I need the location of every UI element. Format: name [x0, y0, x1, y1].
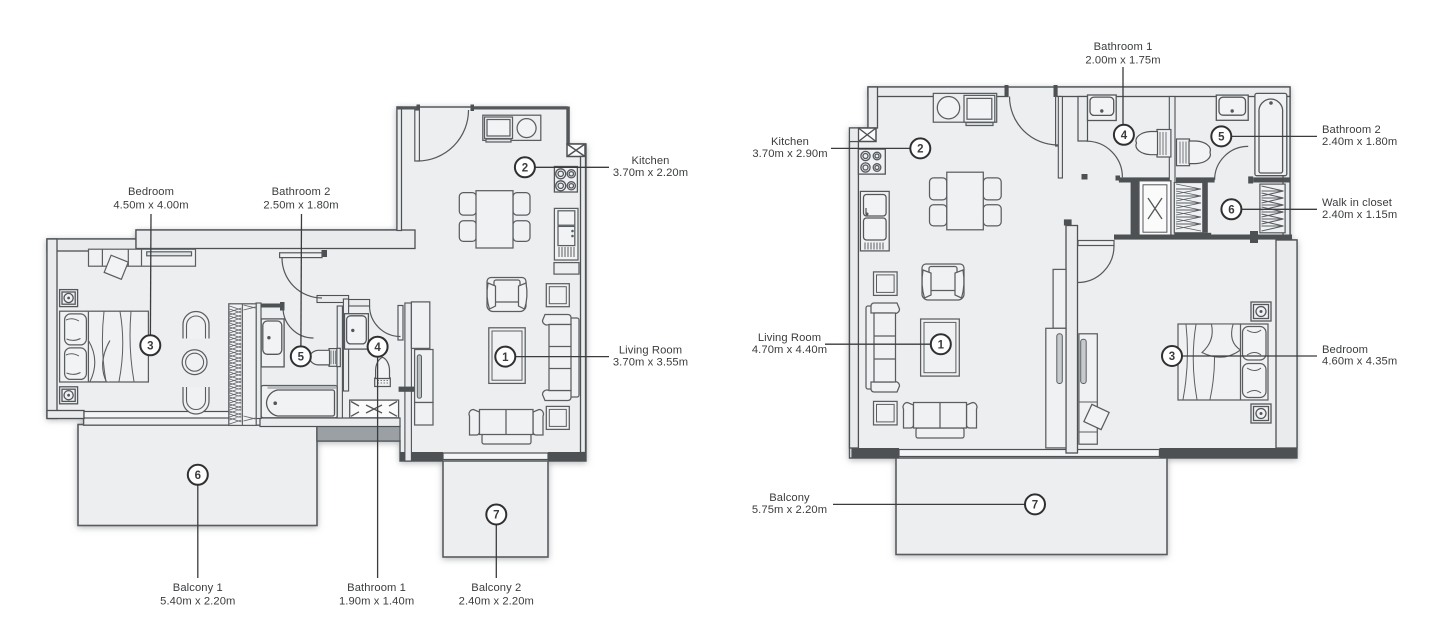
- svg-text:2: 2: [917, 144, 923, 156]
- svg-text:Bathroom 2: Bathroom 2: [1322, 124, 1381, 136]
- svg-text:Kitchen: Kitchen: [631, 155, 669, 167]
- svg-text:3: 3: [147, 341, 153, 353]
- svg-text:Bathroom 1: Bathroom 1: [347, 582, 406, 594]
- svg-text:4: 4: [1121, 130, 1128, 142]
- svg-text:Bedroom: Bedroom: [1322, 344, 1368, 356]
- svg-text:2: 2: [522, 163, 528, 175]
- svg-text:4.70m x 4.40m: 4.70m x 4.40m: [752, 344, 827, 356]
- svg-text:2.40m x 2.20m: 2.40m x 2.20m: [459, 596, 534, 608]
- svg-text:4.50m x 4.00m: 4.50m x 4.00m: [113, 200, 188, 212]
- svg-text:7: 7: [493, 510, 499, 522]
- svg-text:2.40m x 1.15m: 2.40m x 1.15m: [1322, 209, 1397, 221]
- svg-text:Balcony 1: Balcony 1: [173, 582, 223, 594]
- svg-text:Kitchen: Kitchen: [771, 136, 809, 148]
- svg-text:Bathroom 1: Bathroom 1: [1094, 41, 1153, 53]
- svg-text:6: 6: [195, 470, 201, 482]
- svg-text:Walk in closet: Walk in closet: [1322, 197, 1393, 209]
- svg-text:3.70m x 2.20m: 3.70m x 2.20m: [613, 167, 688, 179]
- svg-text:5: 5: [298, 352, 305, 364]
- svg-text:3: 3: [1169, 351, 1175, 363]
- svg-text:5: 5: [1218, 132, 1225, 144]
- svg-text:6: 6: [1228, 205, 1234, 217]
- svg-text:4.60m x 4.35m: 4.60m x 4.35m: [1322, 356, 1397, 368]
- svg-text:3.70m x 2.90m: 3.70m x 2.90m: [752, 148, 827, 160]
- svg-text:5.75m x 2.20m: 5.75m x 2.20m: [752, 504, 827, 516]
- svg-text:Living Room: Living Room: [619, 344, 682, 356]
- svg-text:Balcony 2: Balcony 2: [471, 582, 521, 594]
- svg-text:3.70m x 3.55m: 3.70m x 3.55m: [613, 356, 688, 368]
- svg-text:1: 1: [938, 339, 945, 351]
- svg-text:Bedroom: Bedroom: [128, 186, 174, 198]
- svg-text:2.40m x 1.80m: 2.40m x 1.80m: [1322, 136, 1397, 148]
- svg-text:Living Room: Living Room: [758, 332, 821, 344]
- svg-text:1.90m x 1.40m: 1.90m x 1.40m: [339, 596, 414, 608]
- svg-text:Bathroom 2: Bathroom 2: [272, 186, 331, 198]
- svg-text:1: 1: [502, 352, 509, 364]
- svg-text:4: 4: [374, 342, 381, 354]
- svg-text:2.50m x 1.80m: 2.50m x 1.80m: [263, 200, 338, 212]
- svg-text:Balcony: Balcony: [769, 492, 810, 504]
- svg-text:2.00m x 1.75m: 2.00m x 1.75m: [1085, 55, 1160, 67]
- svg-text:7: 7: [1032, 500, 1038, 512]
- svg-text:5.40m x 2.20m: 5.40m x 2.20m: [160, 596, 235, 608]
